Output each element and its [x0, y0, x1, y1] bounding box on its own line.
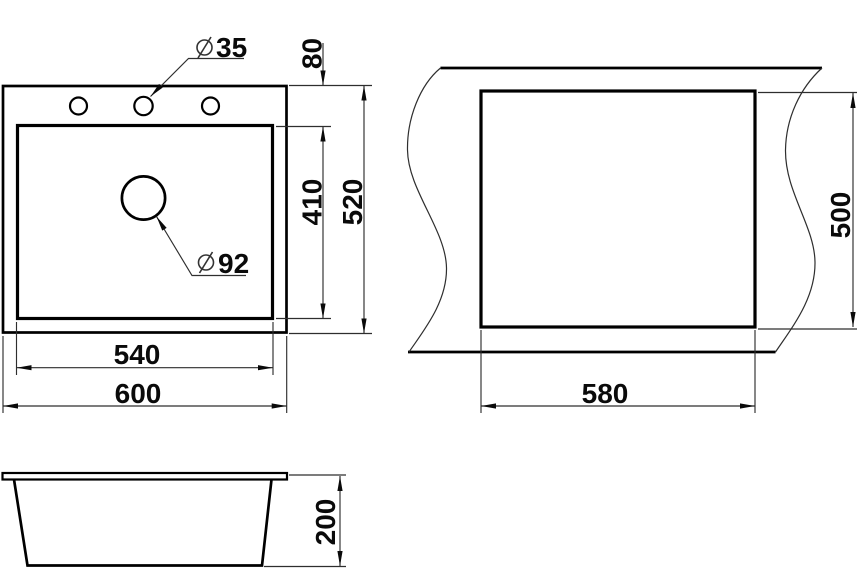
dimension-value-500: 500: [825, 192, 856, 239]
dimension-arrowhead: [850, 312, 855, 327]
dimension-value-200: 200: [310, 499, 341, 546]
dimension-arrowhead: [17, 365, 32, 370]
dimension-arrowhead: [337, 551, 342, 566]
dimension-overall-depth: 520: [337, 86, 368, 334]
dimension-arrowhead: [320, 127, 325, 142]
cutout-outline: [481, 91, 755, 327]
leader-line: [151, 59, 245, 97]
extension-lines: [3, 86, 372, 414]
sink-technical-drawing: 35 92 80: [0, 0, 860, 572]
dimension-arrowhead: [361, 86, 366, 101]
dimension-value-580: 580: [582, 378, 629, 409]
leader-arrowhead: [154, 215, 166, 230]
side-view: 200: [3, 473, 347, 567]
dimension-arrowhead: [320, 71, 325, 86]
technical-drawing-canvas: 35 92 80: [0, 0, 860, 572]
dimension-cutout-height: 500: [825, 93, 856, 327]
callout-drain-hole-diameter: 92: [154, 215, 249, 279]
dimension-cutout-width: 580: [481, 378, 755, 409]
sink-outer-rim-outline: [3, 86, 287, 333]
dimension-value-80: 80: [297, 38, 328, 69]
dimension-arrowhead: [740, 403, 755, 408]
extension-lines: [481, 93, 857, 414]
dimension-overall-width: 600: [3, 378, 287, 409]
dimension-arrowhead: [361, 319, 366, 334]
dimension-bowl-depth: 410: [297, 127, 328, 319]
dimension-arrowhead: [258, 365, 273, 370]
faucet-hole-diameter-value: 35: [216, 32, 247, 63]
countertop-break-line-right: [776, 68, 823, 352]
sink-body-profile: [14, 480, 272, 566]
dimension-bowl-width: 540: [17, 339, 274, 370]
dimension-value-600: 600: [115, 378, 162, 409]
dimension-arrowhead: [337, 476, 342, 491]
sink-rim-flange: [3, 473, 288, 480]
top-view: 35 92 80: [3, 32, 372, 413]
dimension-value-520: 520: [337, 179, 368, 226]
dimension-value-410: 410: [297, 179, 328, 226]
dimension-arrowhead: [481, 403, 496, 408]
dimension-value-540: 540: [114, 339, 161, 370]
dimension-arrowhead: [850, 93, 855, 108]
sink-bowl-outline: [18, 126, 273, 319]
dimension-arrowhead: [272, 403, 287, 408]
faucet-hole-center: [134, 97, 152, 115]
dimension-arrowhead: [3, 403, 18, 408]
drain-hole-diameter-value: 92: [218, 248, 249, 279]
faucet-hole-right: [202, 98, 219, 115]
countertop-break-line-left: [407, 68, 446, 352]
diameter-symbol-icon: [197, 37, 212, 58]
dimension-rim-to-bowl-offset: 80: [297, 38, 328, 86]
cutout-view: 500 580: [407, 68, 857, 413]
faucet-hole-left: [70, 98, 87, 115]
drain-hole: [122, 176, 165, 219]
diameter-symbol-icon: [199, 252, 214, 273]
callout-faucet-hole-diameter: 35: [149, 32, 248, 98]
dimension-sink-height: 200: [310, 476, 343, 566]
dimension-arrowhead: [320, 304, 325, 319]
